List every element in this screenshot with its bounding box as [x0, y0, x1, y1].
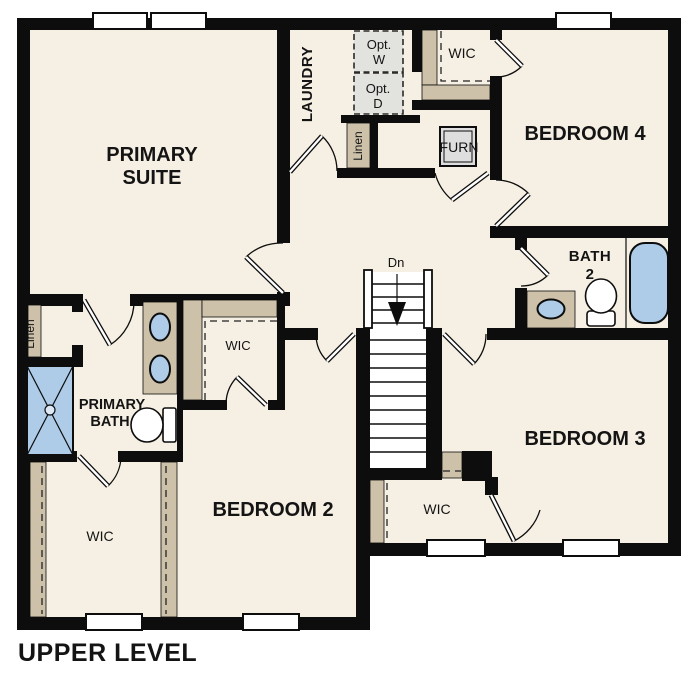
room-label-primary-bath: PRIMARY [79, 397, 146, 413]
label-wic-bedroom3: WIC [423, 501, 450, 517]
label-optional-washer: Opt. [367, 37, 392, 52]
label-linen-bath: Linen [23, 319, 37, 348]
label-wic-bedroom2: WIC [225, 338, 250, 353]
label-optional-dryer: D [373, 96, 382, 111]
bath2-toilet [586, 279, 617, 326]
label-wic-primary: WIC [86, 528, 113, 544]
window [556, 13, 611, 29]
stairs [364, 270, 432, 468]
floor-plan-page: PRIMARY SUITE LAUNDRY Opt. W Opt. D Line… [0, 0, 687, 687]
label-stairs-down: Dn [388, 255, 405, 270]
window [243, 614, 299, 630]
window [563, 540, 619, 556]
plan-title: UPPER LEVEL [18, 639, 197, 667]
room-label-primary-bath: BATH [90, 414, 129, 430]
label-linen-hall: Linen [351, 131, 365, 160]
room-label-laundry: LAUNDRY [299, 46, 316, 122]
stair-railing [364, 270, 372, 328]
window [93, 13, 147, 29]
label-furnace: FURN [440, 139, 479, 155]
window [427, 540, 485, 556]
window [86, 614, 142, 630]
room-label-bath2: BATH [569, 248, 612, 265]
label-optional-washer: W [373, 52, 386, 67]
primary-toilet [131, 408, 176, 442]
floor-plan-svg: PRIMARY SUITE LAUNDRY Opt. W Opt. D Line… [0, 0, 687, 687]
room-label-bath2: 2 [586, 266, 595, 283]
primary-vanity [143, 302, 177, 394]
shower [27, 366, 73, 455]
room-label-bedroom3: BEDROOM 3 [524, 428, 645, 450]
bath2-vanity [527, 291, 575, 328]
bathtub [630, 243, 668, 323]
room-label-bedroom4: BEDROOM 4 [524, 123, 646, 145]
room-label-primary-suite: SUITE [123, 167, 182, 189]
stair-railing [424, 270, 432, 328]
label-wic-bedroom4: WIC [448, 45, 475, 61]
room-label-primary-suite: PRIMARY [106, 144, 198, 166]
room-label-bedroom2: BEDROOM 2 [212, 499, 333, 521]
label-optional-dryer: Opt. [366, 81, 391, 96]
window [151, 13, 206, 29]
floor-area [17, 18, 681, 630]
